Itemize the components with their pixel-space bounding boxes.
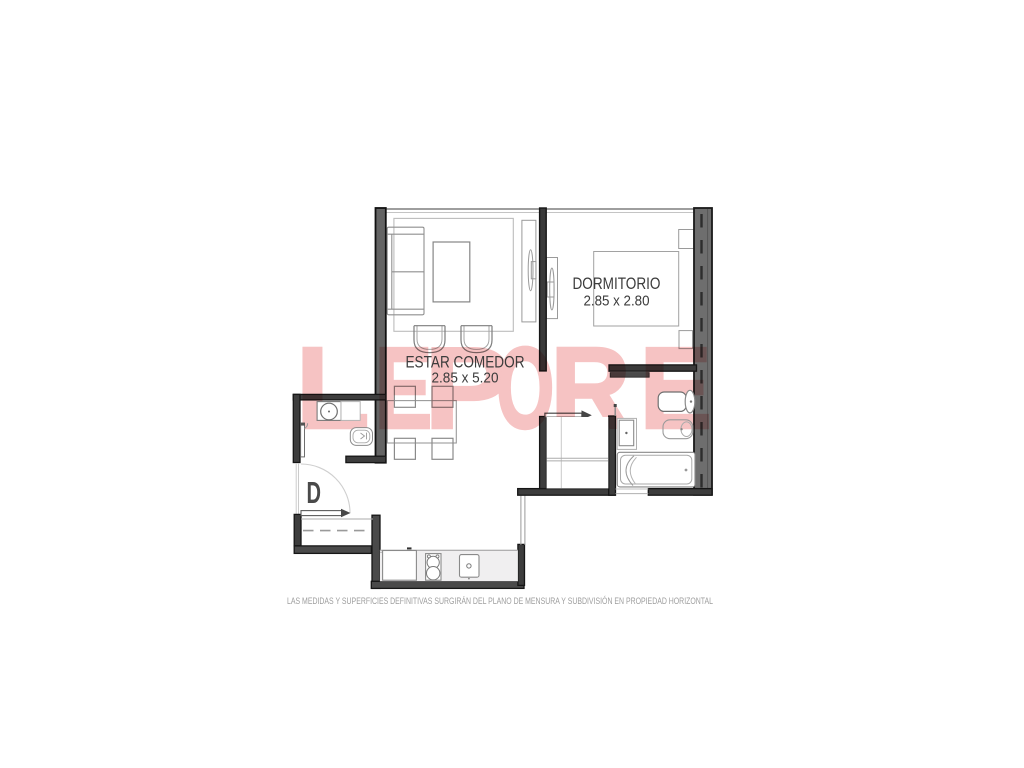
svg-text:LAS MEDIDAS Y SUPERFICIES DEFI: LAS MEDIDAS Y SUPERFICIES DEFINITIVAS SU… (287, 596, 713, 606)
svg-text:D: D (307, 475, 322, 510)
svg-text:E: E (640, 323, 713, 453)
svg-text:DORMITORIO: DORMITORIO (573, 274, 661, 293)
svg-text:2.85 x 2.80: 2.85 x 2.80 (584, 293, 650, 310)
svg-text:2.85 x 5.20: 2.85 x 5.20 (432, 370, 499, 387)
svg-text:O: O (496, 323, 554, 453)
